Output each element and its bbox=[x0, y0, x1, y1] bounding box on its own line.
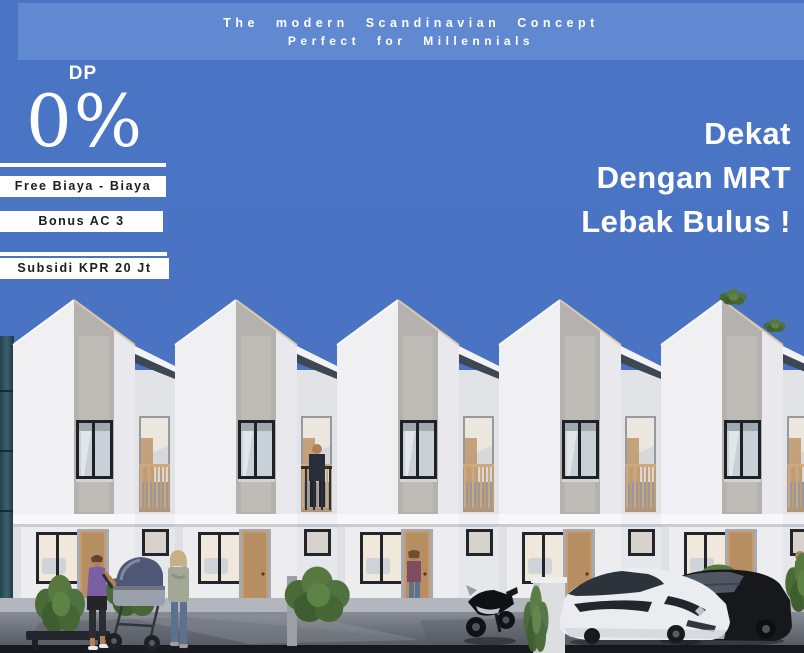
dp-value: 0% bbox=[26, 86, 140, 157]
house-unit-4 bbox=[499, 300, 621, 614]
banner-line-2: Perfect for Millennials bbox=[288, 34, 534, 48]
headline-line-3: Lebak Bulus ! bbox=[581, 200, 791, 244]
headline-line-2: Dengan MRT bbox=[581, 156, 791, 200]
top-banner: The modern Scandinavian Concept Perfect … bbox=[18, 3, 804, 60]
real-estate-poster: The modern Scandinavian Concept Perfect … bbox=[0, 0, 804, 653]
offer-badge-subsidi-kpr: Subsidi KPR 20 Jt bbox=[0, 258, 169, 279]
house-unit-3 bbox=[337, 300, 459, 614]
offer-badge-free-biaya: Free Biaya - Biaya bbox=[0, 176, 166, 197]
balcony-bay-3 bbox=[459, 346, 499, 612]
glass-building bbox=[0, 336, 14, 606]
offer-badge-bonus-ac: Bonus AC 3 bbox=[0, 211, 163, 232]
banner-line-1: The modern Scandinavian Concept bbox=[223, 16, 599, 30]
dp-badge: DP 0% bbox=[26, 63, 140, 157]
headline: Dekat Dengan MRT Lebak Bulus ! bbox=[581, 112, 791, 244]
badge-divider-1 bbox=[0, 163, 166, 167]
house-unit-1 bbox=[13, 300, 135, 614]
house-unit-2 bbox=[175, 300, 297, 614]
headline-line-1: Dekat bbox=[581, 112, 791, 156]
badge-divider-2 bbox=[0, 252, 167, 256]
